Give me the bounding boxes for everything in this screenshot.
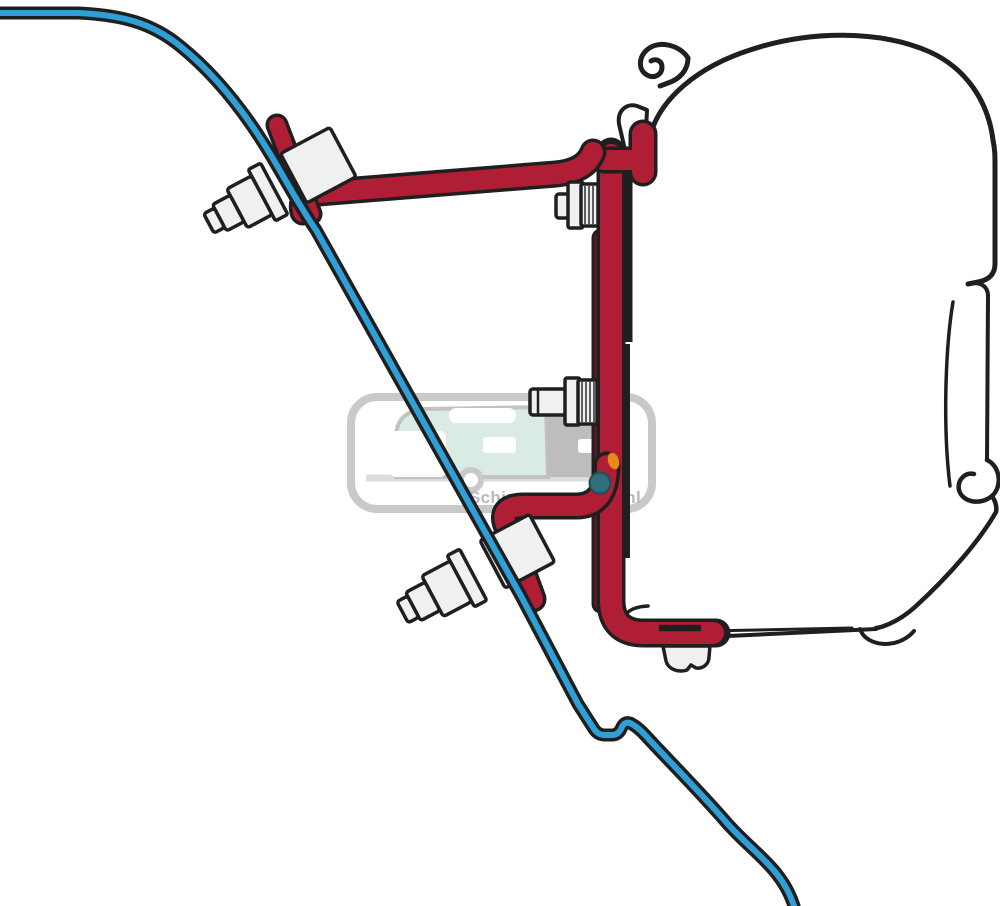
awning-case-body	[640, 36, 995, 640]
foot-nut	[663, 646, 710, 671]
rafter-hook-tail	[660, 58, 688, 86]
watermark-right-wheel-teal	[590, 473, 611, 494]
adapter-diagram: Schippercaravans.nl	[0, 0, 1000, 906]
middle-bolt-shaft	[530, 389, 567, 415]
awning-case	[619, 35, 999, 644]
diagram-canvas: Schippercaravans.nl	[0, 0, 1000, 906]
watermark-caravan-window-top	[449, 408, 516, 423]
top-clamp-bolt	[556, 182, 598, 228]
watermark-caravan-window-mid	[483, 437, 516, 453]
